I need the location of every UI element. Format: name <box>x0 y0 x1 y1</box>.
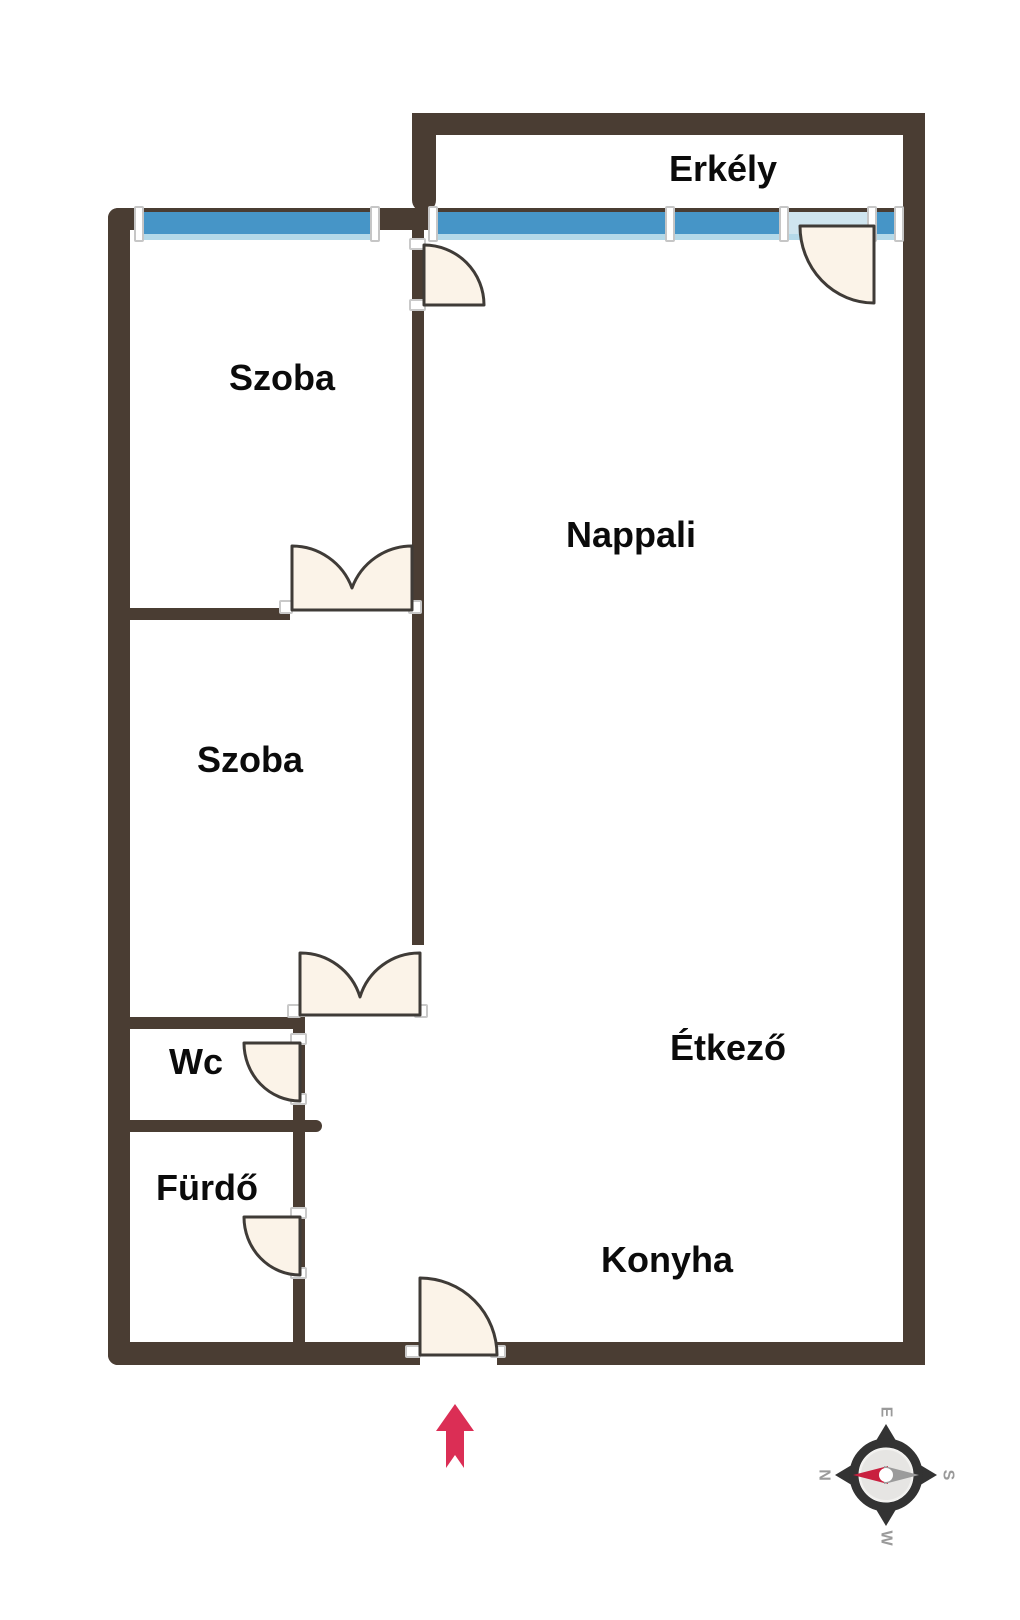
szoba2-double-door <box>300 953 420 1015</box>
entrance-door <box>420 1278 497 1355</box>
furdo-door <box>244 1217 300 1275</box>
nappali-door <box>424 245 484 305</box>
compass-label-left: N <box>816 1469 833 1481</box>
compass-icon: E N S W <box>816 1407 957 1547</box>
room-label-erkely: Erkély <box>669 148 777 190</box>
room-label-konyha: Konyha <box>601 1239 733 1281</box>
szoba-double-door <box>292 546 412 610</box>
room-label-nappali: Nappali <box>566 514 696 556</box>
compass-label-bottom: W <box>878 1530 895 1546</box>
compass-label-right: S <box>940 1470 957 1481</box>
wc-door <box>244 1043 300 1101</box>
balcony-door <box>800 226 874 303</box>
room-label-etkezo: Étkező <box>670 1027 786 1069</box>
room-label-furdo: Fürdő <box>156 1167 258 1209</box>
room-label-szoba1: Szoba <box>229 357 335 399</box>
room-label-szoba2: Szoba <box>197 739 303 781</box>
floor-plan: E N S W Erkély Szoba Nappali Szoba Wc Fü… <box>0 0 1020 1620</box>
room-label-wc: Wc <box>169 1041 223 1083</box>
compass-label-top: E <box>878 1407 895 1418</box>
entrance-arrow-icon <box>436 1404 474 1468</box>
